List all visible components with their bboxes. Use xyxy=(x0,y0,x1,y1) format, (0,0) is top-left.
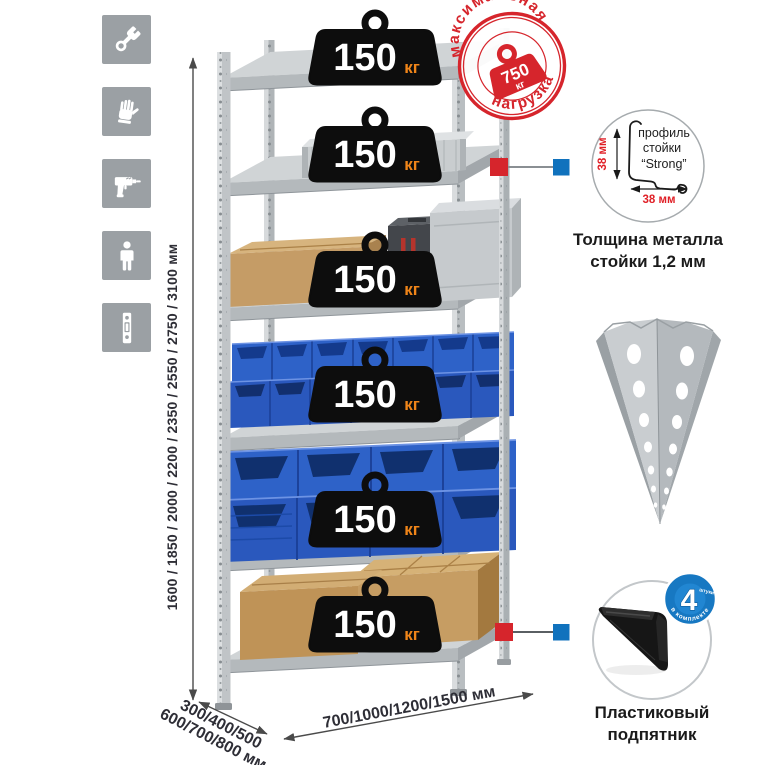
svg-text:кг: кг xyxy=(404,58,420,77)
svg-text:профиль: профиль xyxy=(638,126,690,140)
svg-text:кг: кг xyxy=(404,280,420,299)
caption-line: Пластиковый xyxy=(564,702,740,724)
svg-text:150: 150 xyxy=(333,134,396,176)
callout-blue-square xyxy=(553,624,570,641)
svg-text:150: 150 xyxy=(333,374,396,416)
callout-red-square xyxy=(495,623,513,641)
profile-callout xyxy=(490,158,570,176)
svg-text:150: 150 xyxy=(333,499,396,541)
caption-line: стойки 1,2 мм xyxy=(560,251,736,273)
callout-red-square xyxy=(490,158,508,176)
rack-front-left-post xyxy=(215,52,232,710)
svg-text:стойки: стойки xyxy=(643,141,681,155)
profile-detail-circle: 38 мм 38 мм профиль стойки “Strong” xyxy=(592,110,704,222)
caption-line: подпятник xyxy=(564,724,740,746)
svg-text:150: 150 xyxy=(333,37,396,79)
rack-illustration: 150 кг 150 кг 150 кг 150 кг 150 кг 150 к… xyxy=(0,0,765,765)
svg-text:кг: кг xyxy=(404,520,420,539)
svg-text:150: 150 xyxy=(333,604,396,646)
svg-text:“Strong”: “Strong” xyxy=(641,157,686,171)
depth-dimension: 300/400/500 600/700/800 мм xyxy=(157,690,277,765)
width-dimension: 700/1000/1200/1500 мм xyxy=(284,683,533,739)
rack-back-right-post xyxy=(497,28,511,665)
foot-caption: Пластиковый подпятник xyxy=(564,702,740,747)
svg-text:4: 4 xyxy=(681,584,698,617)
shelving-rack-infographic: 1600 / 1850 / 2000 / 2200 / 2350 / 2550 … xyxy=(0,0,765,765)
svg-text:150: 150 xyxy=(333,259,396,301)
svg-text:700/1000/1200/1500 мм: 700/1000/1200/1500 мм xyxy=(322,683,497,732)
caption-line: Толщина металла xyxy=(560,229,736,251)
profile-thickness-caption: Толщина металла стойки 1,2 мм xyxy=(560,229,736,274)
svg-text:кг: кг xyxy=(404,155,420,174)
load-badge-shelf-1: 150 кг xyxy=(309,13,440,85)
svg-text:кг: кг xyxy=(404,395,420,414)
quantity-badge: в комплекте 4 штуки xyxy=(664,573,716,625)
foot-callout xyxy=(495,623,570,641)
callout-blue-square xyxy=(553,159,570,176)
svg-text:кг: кг xyxy=(404,625,420,644)
corner-post-3d xyxy=(596,319,721,524)
load-badge-shelf-2: 150 кг xyxy=(309,110,440,182)
svg-text:38 мм: 38 мм xyxy=(597,137,609,170)
svg-text:38 мм: 38 мм xyxy=(642,194,675,206)
